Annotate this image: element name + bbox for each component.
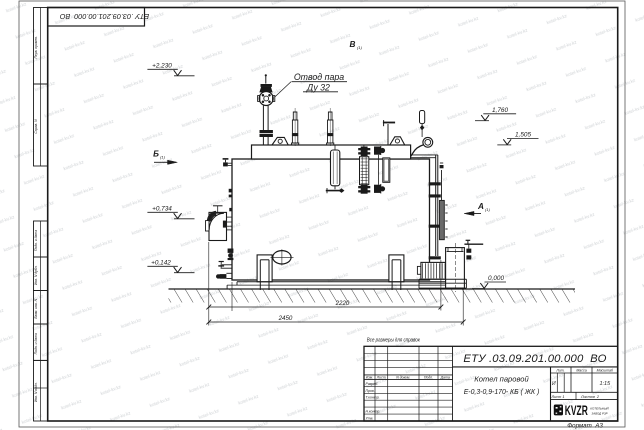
svg-text:Котел паровой: Котел паровой bbox=[474, 375, 529, 384]
svg-text:Подп. и дата: Подп. и дата bbox=[34, 333, 38, 354]
svg-text:1:15: 1:15 bbox=[599, 381, 611, 387]
svg-text:Масштаб: Масштаб bbox=[597, 369, 614, 373]
svg-text:КОТЕЛЬНЫЙ: КОТЕЛЬНЫЙ bbox=[590, 406, 609, 410]
svg-text:А: А bbox=[477, 202, 484, 211]
svg-text:Инв. N подл.: Инв. N подл. bbox=[34, 382, 38, 402]
svg-text:Т.контр.: Т.контр. bbox=[366, 396, 380, 400]
svg-text:И: И bbox=[552, 381, 556, 387]
svg-text:Лист: Лист bbox=[376, 375, 386, 379]
svg-text:Справ. N: Справ. N bbox=[34, 119, 38, 134]
svg-text:Взам. инв. N: Взам. инв. N bbox=[34, 298, 38, 318]
svg-text:Е-0,3-0,9-170- КБ ( ЖК ): Е-0,3-0,9-170- КБ ( ЖК ) bbox=[464, 389, 540, 396]
svg-text:Инв. N дубл.: Инв. N дубл. bbox=[34, 265, 38, 285]
svg-text:Подп. и дата: Подп. и дата bbox=[34, 230, 38, 251]
svg-text:Разраб.: Разраб. bbox=[366, 382, 379, 386]
svg-text:N докум.: N докум. bbox=[396, 375, 410, 379]
svg-text:Перв. примен.: Перв. примен. bbox=[34, 36, 38, 59]
svg-text:Все размеры для справок: Все размеры для справок bbox=[367, 338, 420, 344]
svg-text:Ду 32: Ду 32 bbox=[306, 83, 330, 93]
svg-text:Дата: Дата bbox=[440, 375, 450, 379]
svg-text:+0,142: +0,142 bbox=[151, 260, 171, 267]
svg-text:ЕТУ .03.09.201.00.000 ВО: ЕТУ .03.09.201.00.000 ВО bbox=[463, 353, 606, 365]
svg-text:2450: 2450 bbox=[278, 315, 293, 322]
svg-text:1,505: 1,505 bbox=[515, 132, 531, 139]
svg-text:ЕТУ .03.09.201.00.000 ВО: ЕТУ .03.09.201.00.000 ВО bbox=[60, 12, 150, 21]
svg-text:В: В bbox=[350, 40, 356, 49]
svg-text:Подп.: Подп. bbox=[424, 375, 433, 379]
svg-text:Пров.: Пров. bbox=[366, 389, 375, 393]
svg-text:Лит.: Лит. bbox=[555, 369, 564, 373]
svg-text:Отвод пара: Отвод пара bbox=[294, 72, 344, 82]
svg-text:+0,734: +0,734 bbox=[152, 206, 172, 213]
svg-text:(1): (1) bbox=[485, 207, 491, 212]
svg-text:Б: Б bbox=[153, 150, 159, 159]
svg-text:2220: 2220 bbox=[335, 300, 350, 307]
svg-text:Листов 2: Листов 2 bbox=[580, 395, 600, 399]
svg-text:ЗАВОД РЗР: ЗАВОД РЗР bbox=[591, 411, 607, 415]
svg-text:Масса: Масса bbox=[576, 369, 586, 373]
svg-text:Н.контр.: Н.контр. bbox=[366, 410, 381, 414]
svg-text:+2,230: +2,230 bbox=[152, 63, 172, 70]
svg-text:(1): (1) bbox=[357, 45, 363, 50]
svg-text:Формат А3: Формат А3 bbox=[567, 422, 603, 429]
svg-text:Утв.: Утв. bbox=[366, 417, 374, 421]
svg-text:0,000: 0,000 bbox=[488, 275, 504, 282]
svg-text:(1): (1) bbox=[160, 155, 166, 160]
svg-text:Изм.: Изм. bbox=[366, 375, 373, 379]
svg-text:1,760: 1,760 bbox=[492, 107, 508, 114]
svg-text:Лист 1: Лист 1 bbox=[551, 395, 565, 399]
svg-text:KVZR: KVZR bbox=[565, 403, 588, 418]
